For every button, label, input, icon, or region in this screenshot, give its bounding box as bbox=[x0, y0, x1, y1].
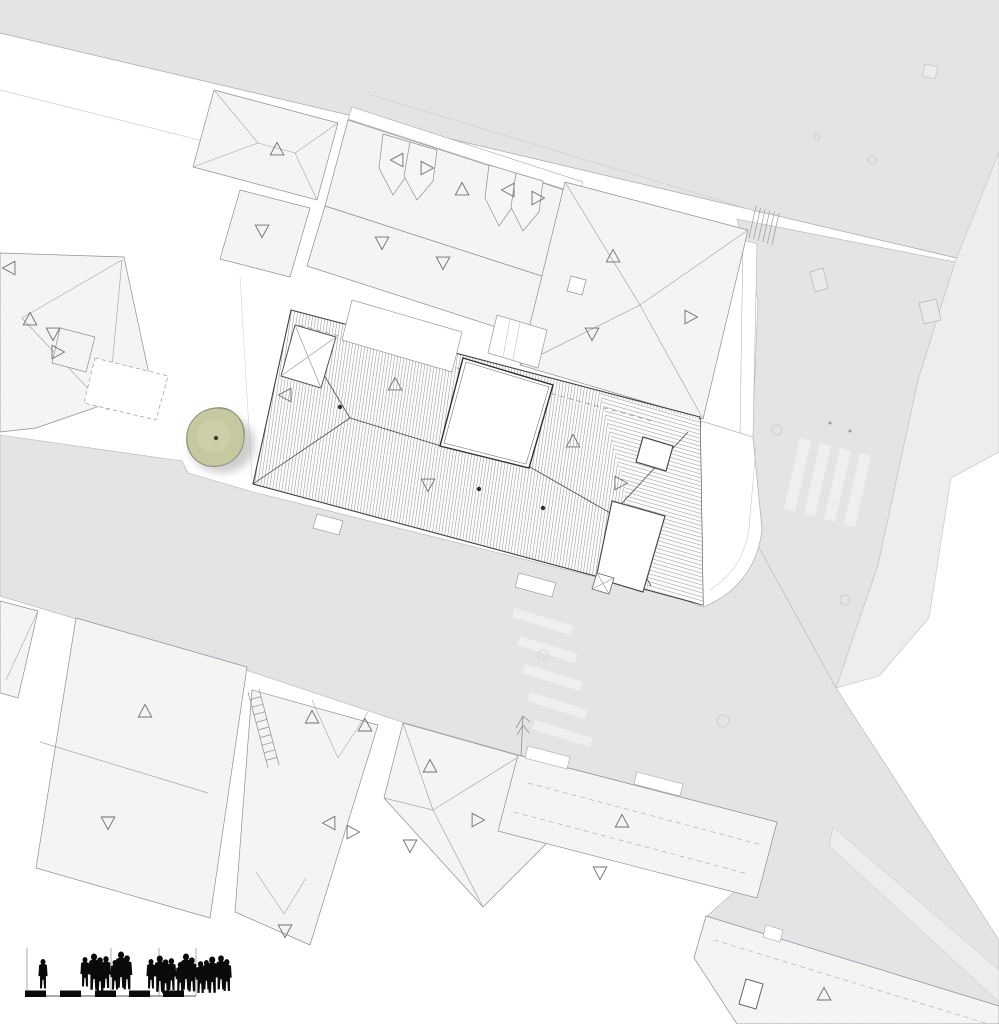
people-single-person bbox=[38, 959, 47, 989]
scale-bar-segment bbox=[95, 991, 116, 998]
roof-slope-triangle bbox=[403, 840, 417, 853]
building-bottom-edge bbox=[0, 601, 38, 698]
site-plan-svg bbox=[0, 0, 999, 1024]
scale-bar-segment bbox=[163, 991, 184, 998]
scale-bar-segment bbox=[60, 991, 81, 998]
people-small-group bbox=[80, 952, 132, 992]
person-silhouette bbox=[80, 957, 89, 987]
street-dot bbox=[849, 430, 852, 433]
person-silhouette bbox=[38, 959, 47, 989]
tree-trunk-dot bbox=[214, 436, 218, 440]
street-dot bbox=[829, 422, 832, 425]
roof-drain bbox=[338, 405, 342, 409]
roof-slope-triangle bbox=[593, 867, 607, 880]
utility-box bbox=[922, 64, 938, 79]
tree-inner bbox=[197, 419, 231, 453]
lane-line-left bbox=[0, 90, 227, 147]
site-plan-page bbox=[0, 0, 999, 1024]
left-courtyard bbox=[84, 358, 168, 420]
roof-slope-triangle bbox=[347, 825, 359, 839]
roof-drain bbox=[477, 487, 481, 491]
person-silhouette bbox=[146, 959, 155, 989]
building-bottom-left bbox=[36, 618, 247, 918]
roof-drain bbox=[541, 506, 545, 510]
scale-bar-segment bbox=[129, 991, 150, 998]
scale-bar-segment bbox=[25, 991, 46, 998]
building-top-left-2 bbox=[220, 190, 310, 277]
building-narrow bbox=[235, 690, 378, 945]
